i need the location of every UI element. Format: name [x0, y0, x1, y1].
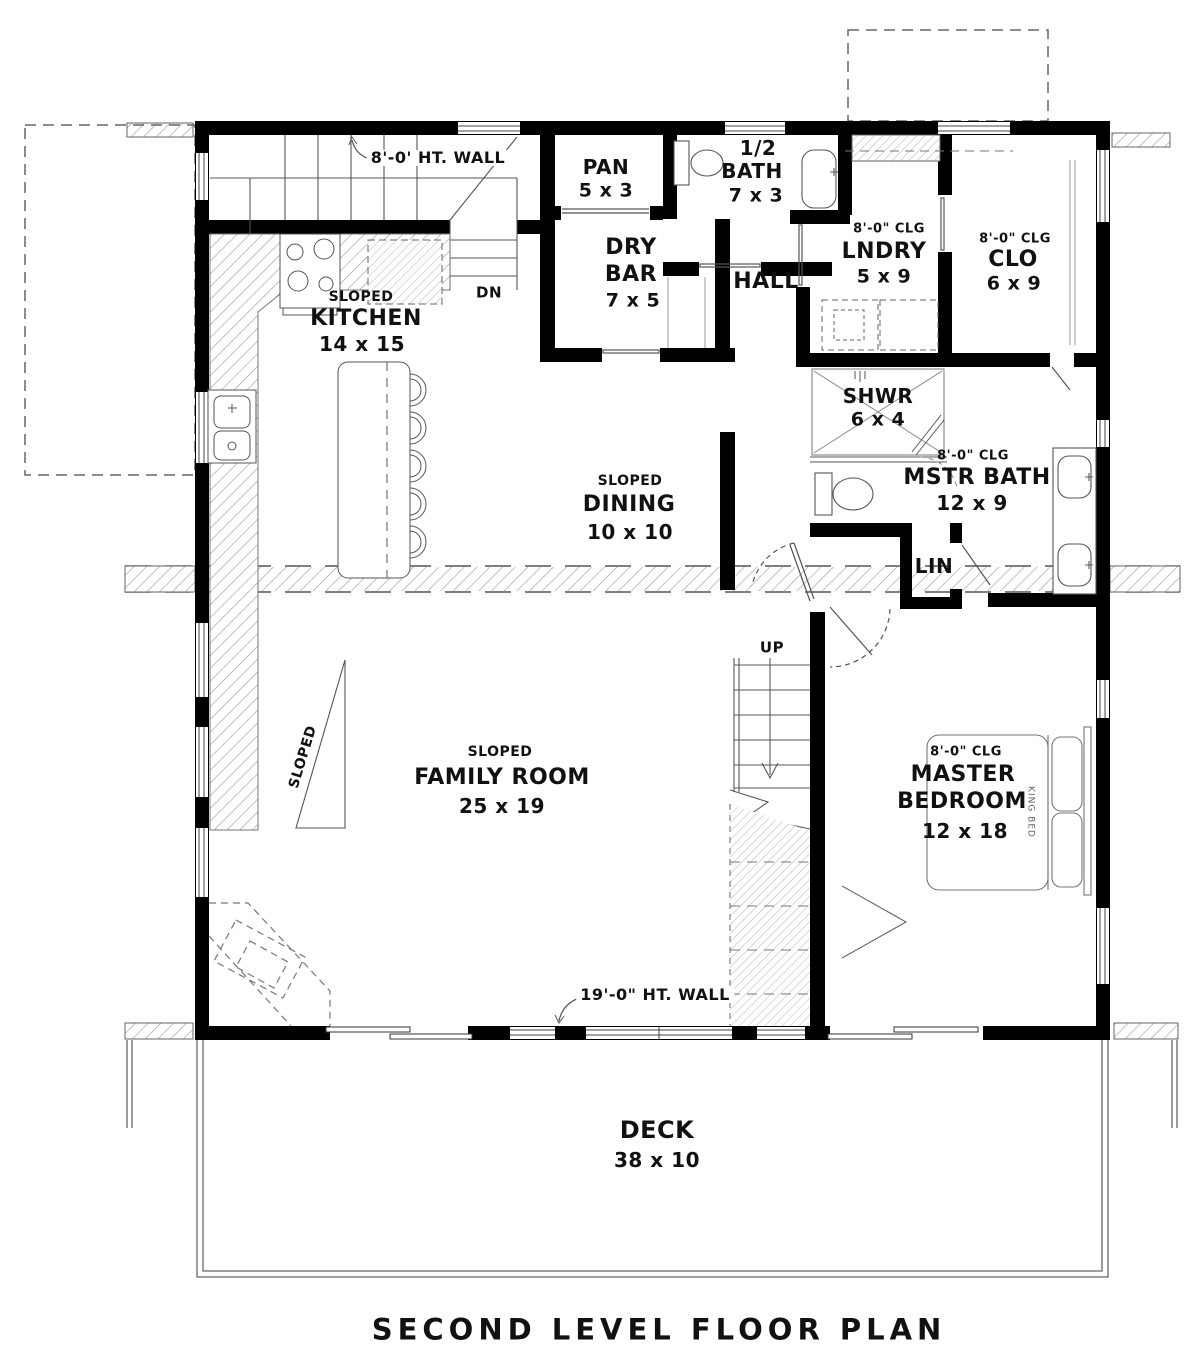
label-laundry-dims: 5 x 9 — [857, 268, 911, 287]
label-master-bath-clg: 8'-0" CLG — [937, 450, 1009, 463]
label-linen: LIN — [915, 556, 953, 576]
label-laundry-name: LNDRY — [842, 241, 927, 263]
label-closet-dims: 6 x 9 — [987, 275, 1041, 294]
label-dry-bar-dims: 7 x 5 — [606, 292, 660, 311]
label-kitchen-name: KITCHEN — [310, 308, 422, 330]
label-half-bath-dims: 7 x 3 — [729, 187, 783, 206]
top-wall-note: 8'-0' HT. WALL — [367, 150, 510, 166]
washer — [822, 300, 878, 350]
label-master-bedroom-dims: 12 x 18 — [922, 821, 1008, 841]
label-hall: HALL — [733, 271, 798, 293]
label-up: UP — [760, 641, 784, 656]
label-family-dims: 25 x 19 — [459, 796, 545, 816]
thin-lines — [668, 277, 705, 348]
floor-plan-drawing — [0, 0, 1200, 1357]
label-master-bedroom-clg: 8'-0" CLG — [930, 746, 1002, 759]
label-dining-dims: 10 x 10 — [587, 522, 673, 542]
dryer — [880, 300, 938, 350]
label-half-bath-line1: 1/2 — [740, 138, 777, 158]
label-dining-name: DINING — [583, 494, 676, 516]
label-pan-name: PAN — [583, 157, 630, 177]
label-family-sloped: SLOPED — [468, 745, 533, 759]
label-master-bath-dims: 12 x 9 — [936, 493, 1008, 513]
label-king-bed: KING BED — [1026, 786, 1035, 838]
page-title: SECOND LEVEL FLOOR PLAN — [372, 1316, 947, 1345]
label-family-name: FAMILY ROOM — [414, 767, 590, 789]
label-half-bath-line2: BATH — [721, 161, 783, 181]
label-laundry-clg: 8'-0" CLG — [853, 223, 925, 236]
label-kitchen-dims: 14 x 15 — [319, 334, 405, 354]
label-kitchen-sloped: SLOPED — [329, 290, 394, 304]
vanity — [1053, 448, 1096, 594]
bottom-wall-note: 19'-0" HT. WALL — [576, 987, 734, 1003]
label-deck-name: DECK — [620, 1118, 695, 1142]
floor-break-band — [125, 566, 1180, 592]
closet-rod — [1070, 160, 1075, 345]
label-dining-sloped: SLOPED — [598, 474, 663, 488]
center-stairs — [730, 658, 810, 1026]
kitchen-island — [338, 362, 410, 578]
label-master-bedroom-line2: BEDROOM — [897, 791, 1027, 813]
label-dry-bar-line1: DRY — [605, 237, 656, 259]
label-closet-clg: 8'-0" CLG — [979, 233, 1051, 246]
kitchen-sink — [208, 390, 256, 463]
label-shower-name: SHWR — [843, 386, 914, 406]
label-master-bath-name: MSTR BATH — [903, 467, 1050, 489]
label-shower-dims: 6 x 4 — [851, 411, 905, 430]
label-pan-dims: 5 x 3 — [579, 182, 633, 201]
label-dry-bar-line2: BAR — [605, 264, 657, 286]
corner-fireplace — [209, 903, 330, 1026]
label-dn: DN — [476, 286, 502, 301]
floor-plan: 8'-0' HT. WALL PAN 5 x 3 1/2 BATH 7 x 3 … — [0, 0, 1200, 1357]
direction-chevron — [842, 886, 906, 958]
label-master-bedroom-line1: MASTER — [911, 764, 1016, 786]
label-closet-name: CLO — [988, 249, 1038, 271]
label-deck-dims: 38 x 10 — [614, 1150, 700, 1170]
